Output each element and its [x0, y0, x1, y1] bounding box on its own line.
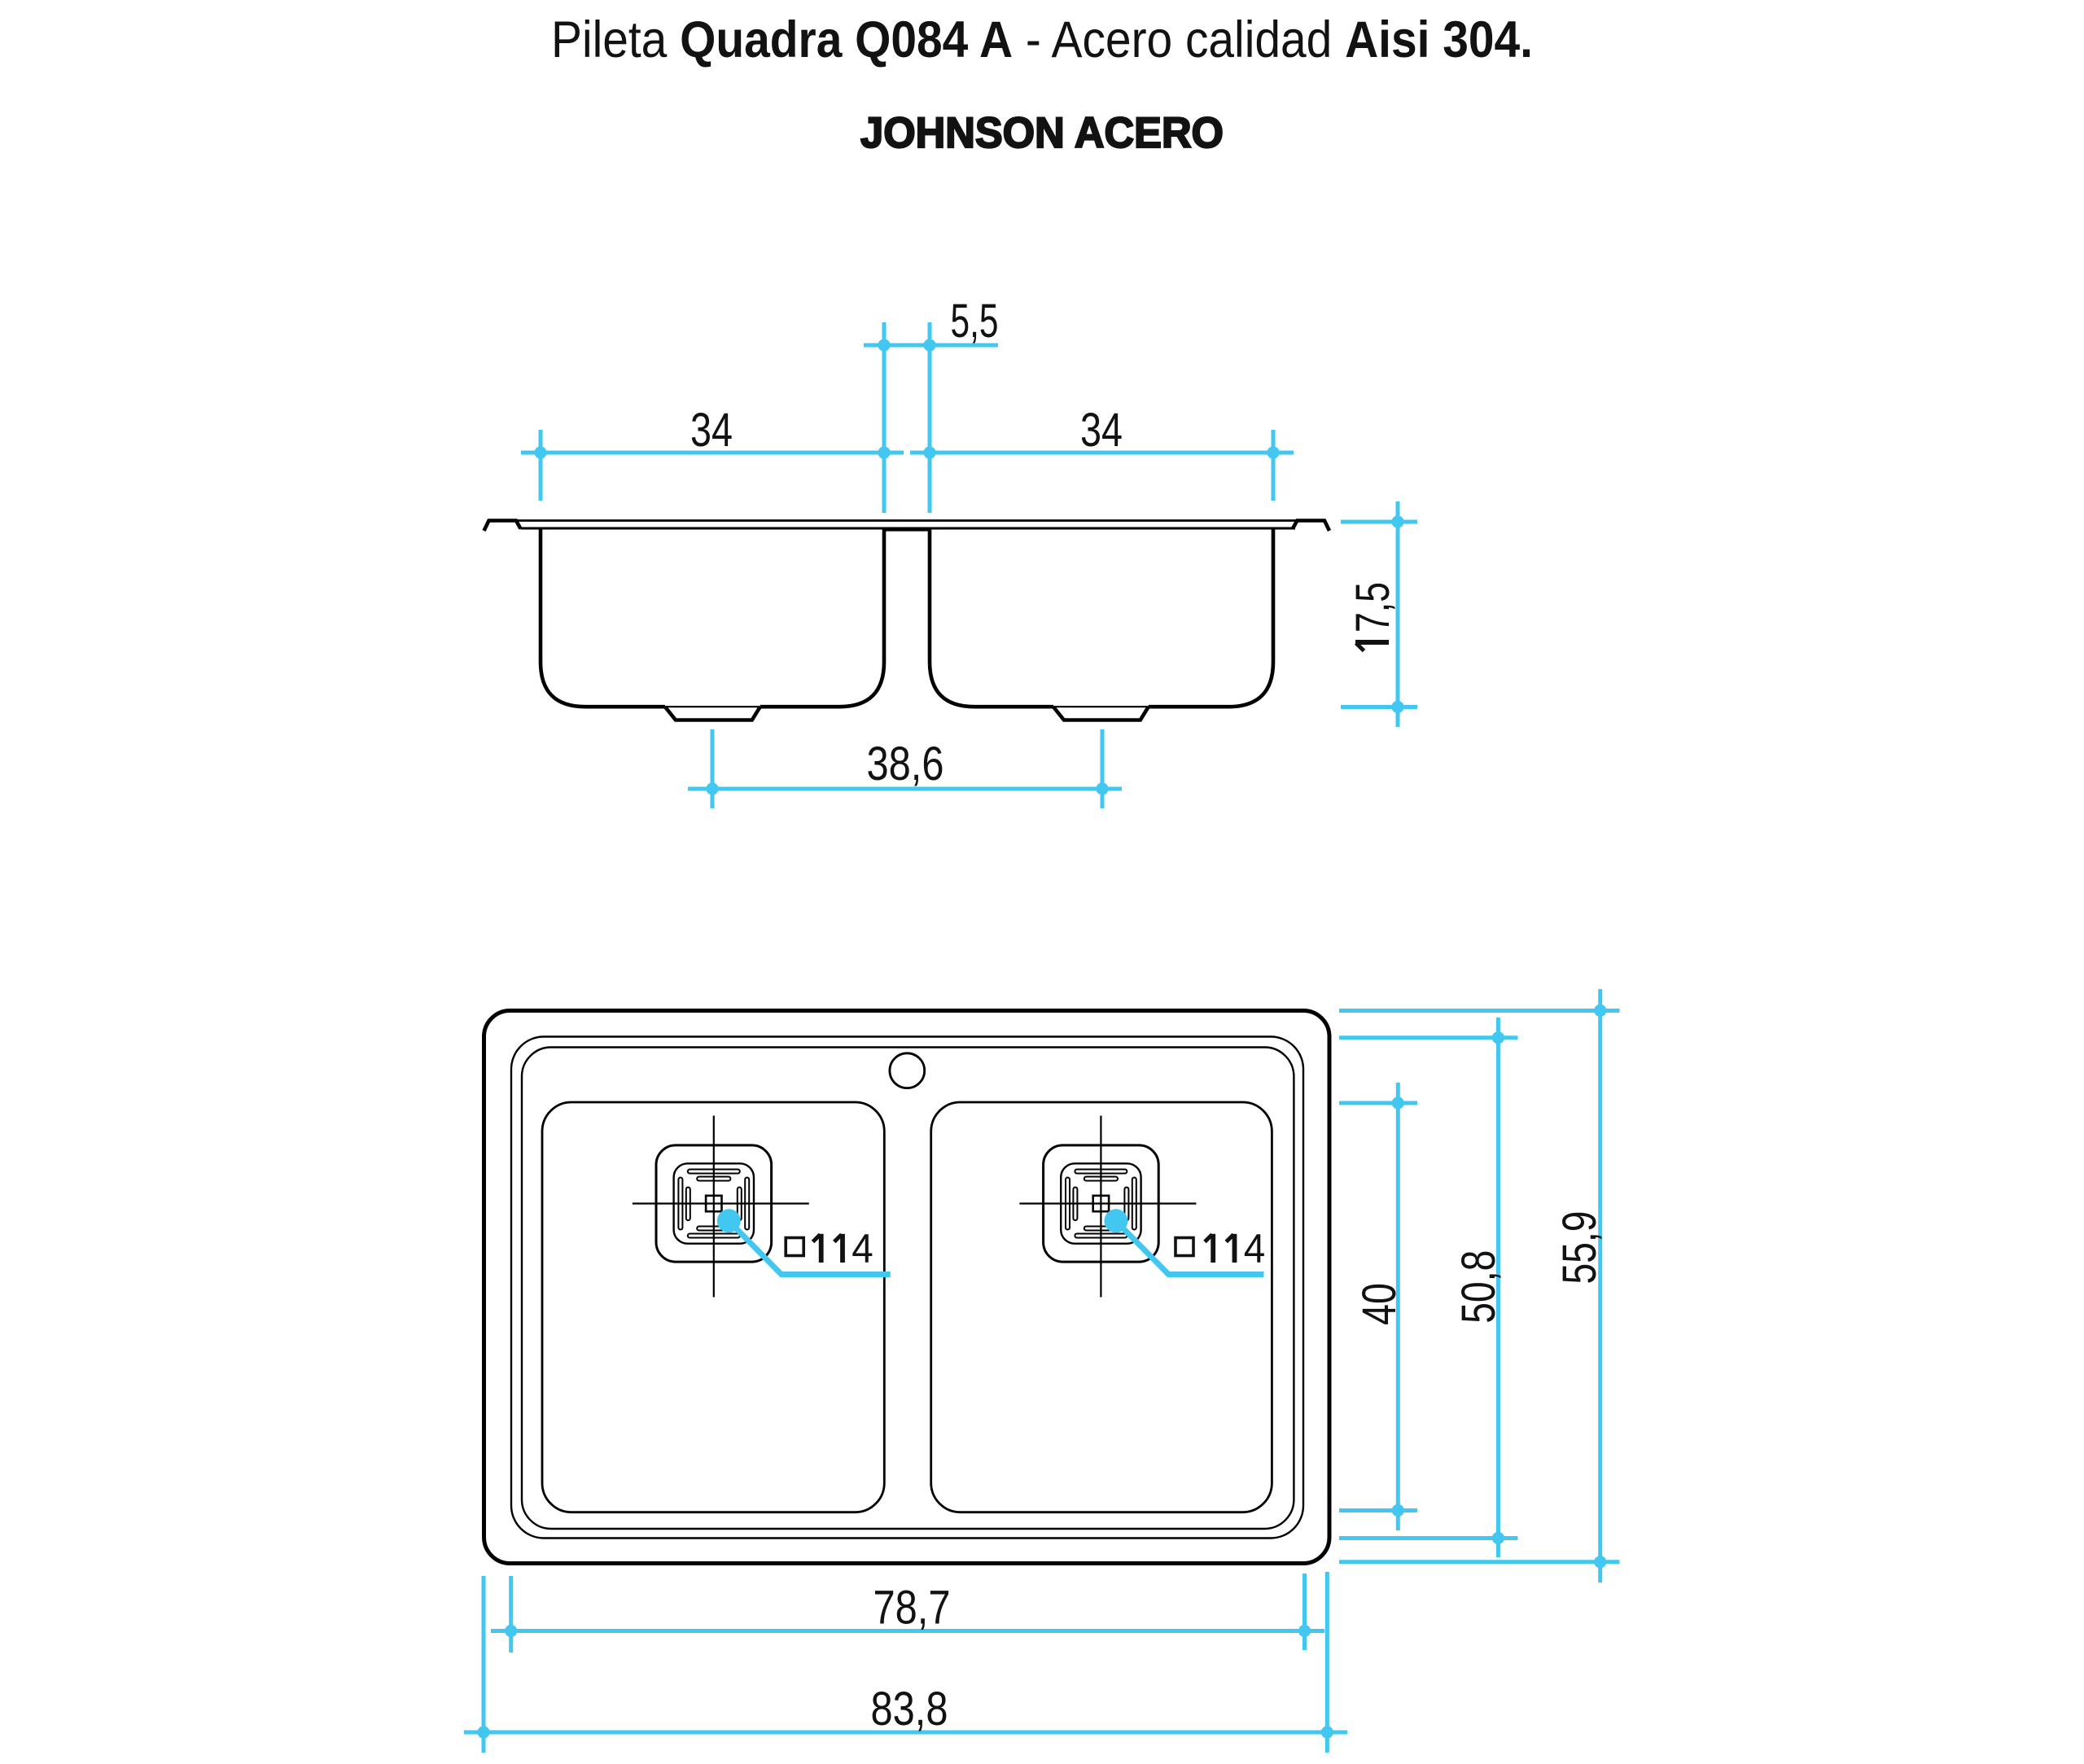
svg-text:JOHNSON ACERO: JOHNSON ACERO	[860, 109, 1224, 157]
svg-text:34: 34	[1080, 404, 1123, 457]
svg-text:50,8: 50,8	[1452, 1250, 1505, 1324]
svg-text:83,8: 83,8	[871, 1683, 948, 1736]
svg-text:55,9: 55,9	[1553, 1211, 1606, 1285]
svg-text:4: 4	[1244, 1226, 1266, 1272]
svg-text:Pileta Quadra Q084 A - Acero c: Pileta Quadra Q084 A - Acero calidad Ais…	[551, 11, 1533, 68]
svg-text:4: 4	[852, 1226, 873, 1272]
svg-text:40: 40	[1353, 1283, 1406, 1325]
svg-text:38,6: 38,6	[867, 738, 944, 790]
svg-text:78,7: 78,7	[873, 1582, 951, 1635]
svg-text:5,5: 5,5	[951, 295, 999, 348]
svg-text:7,5: 7,5	[1346, 582, 1399, 633]
svg-text:34: 34	[690, 404, 733, 457]
